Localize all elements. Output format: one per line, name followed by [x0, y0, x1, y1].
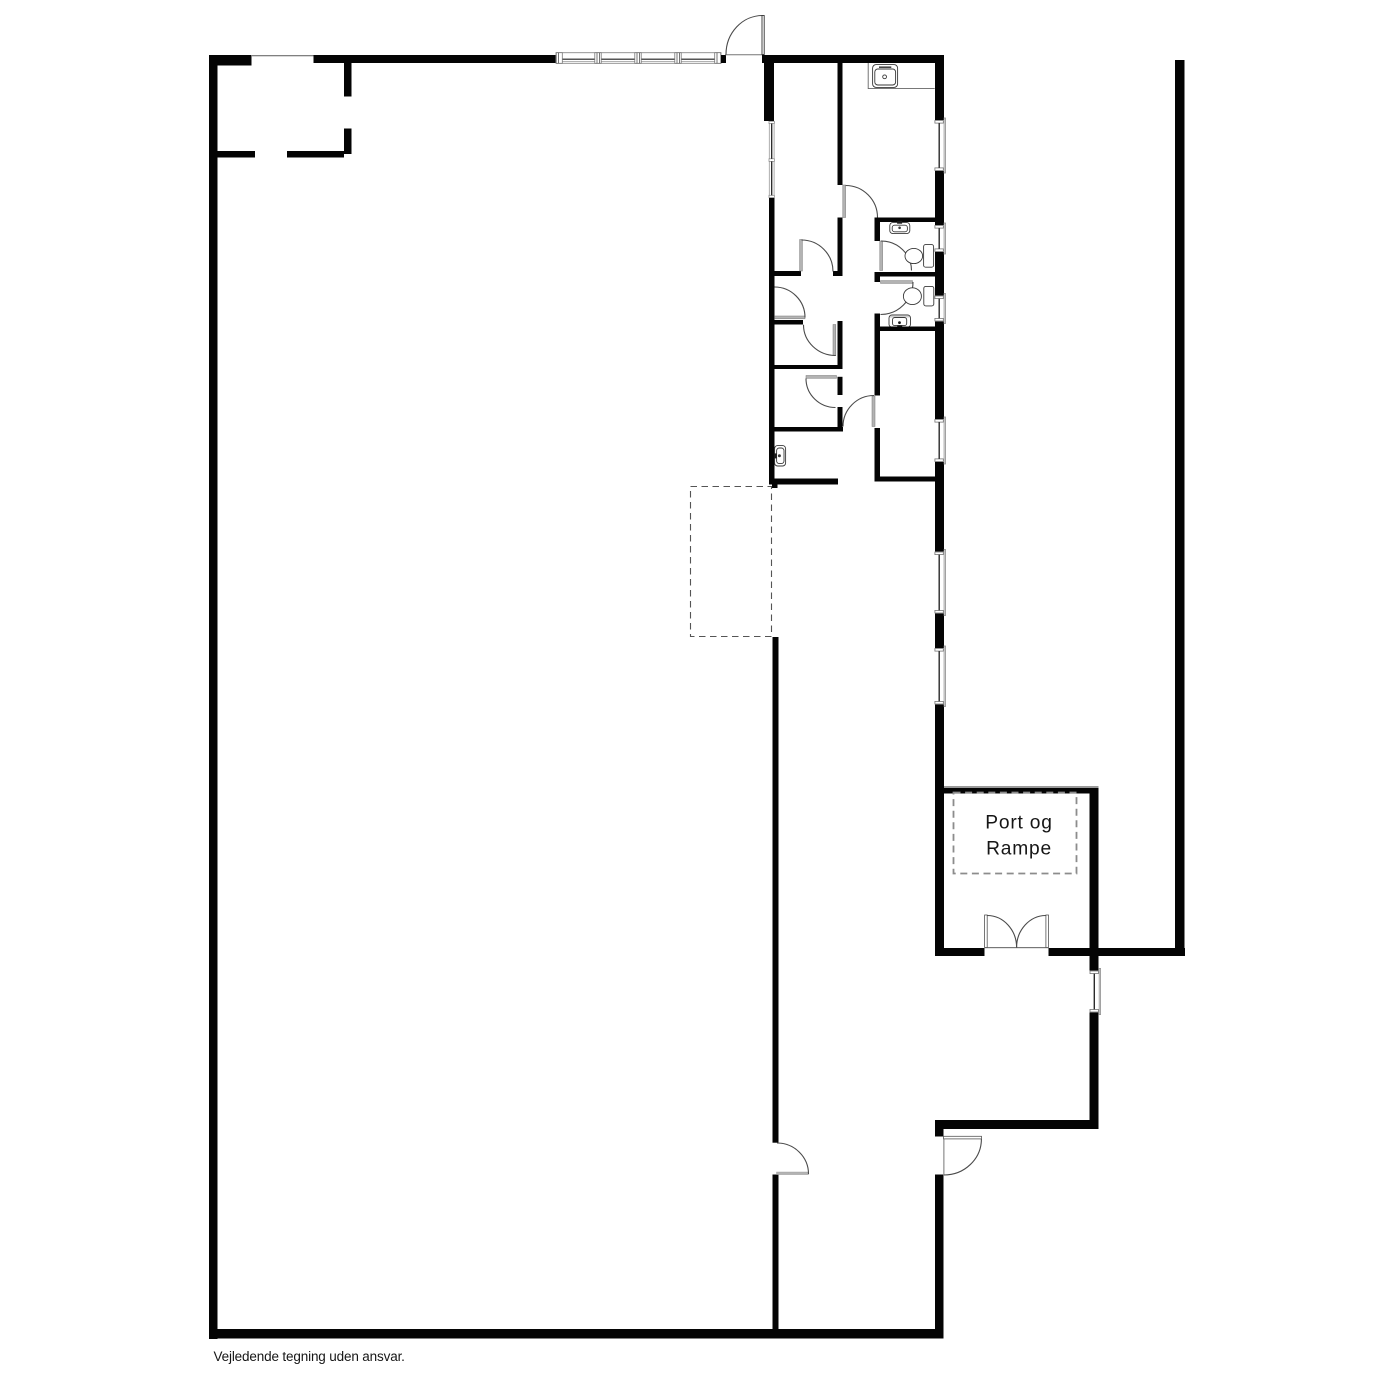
- svg-text:Vejledende tegning uden ansvar: Vejledende tegning uden ansvar.: [214, 1349, 405, 1364]
- svg-text:Port og: Port og: [985, 812, 1052, 833]
- svg-text:Rampe: Rampe: [986, 839, 1052, 860]
